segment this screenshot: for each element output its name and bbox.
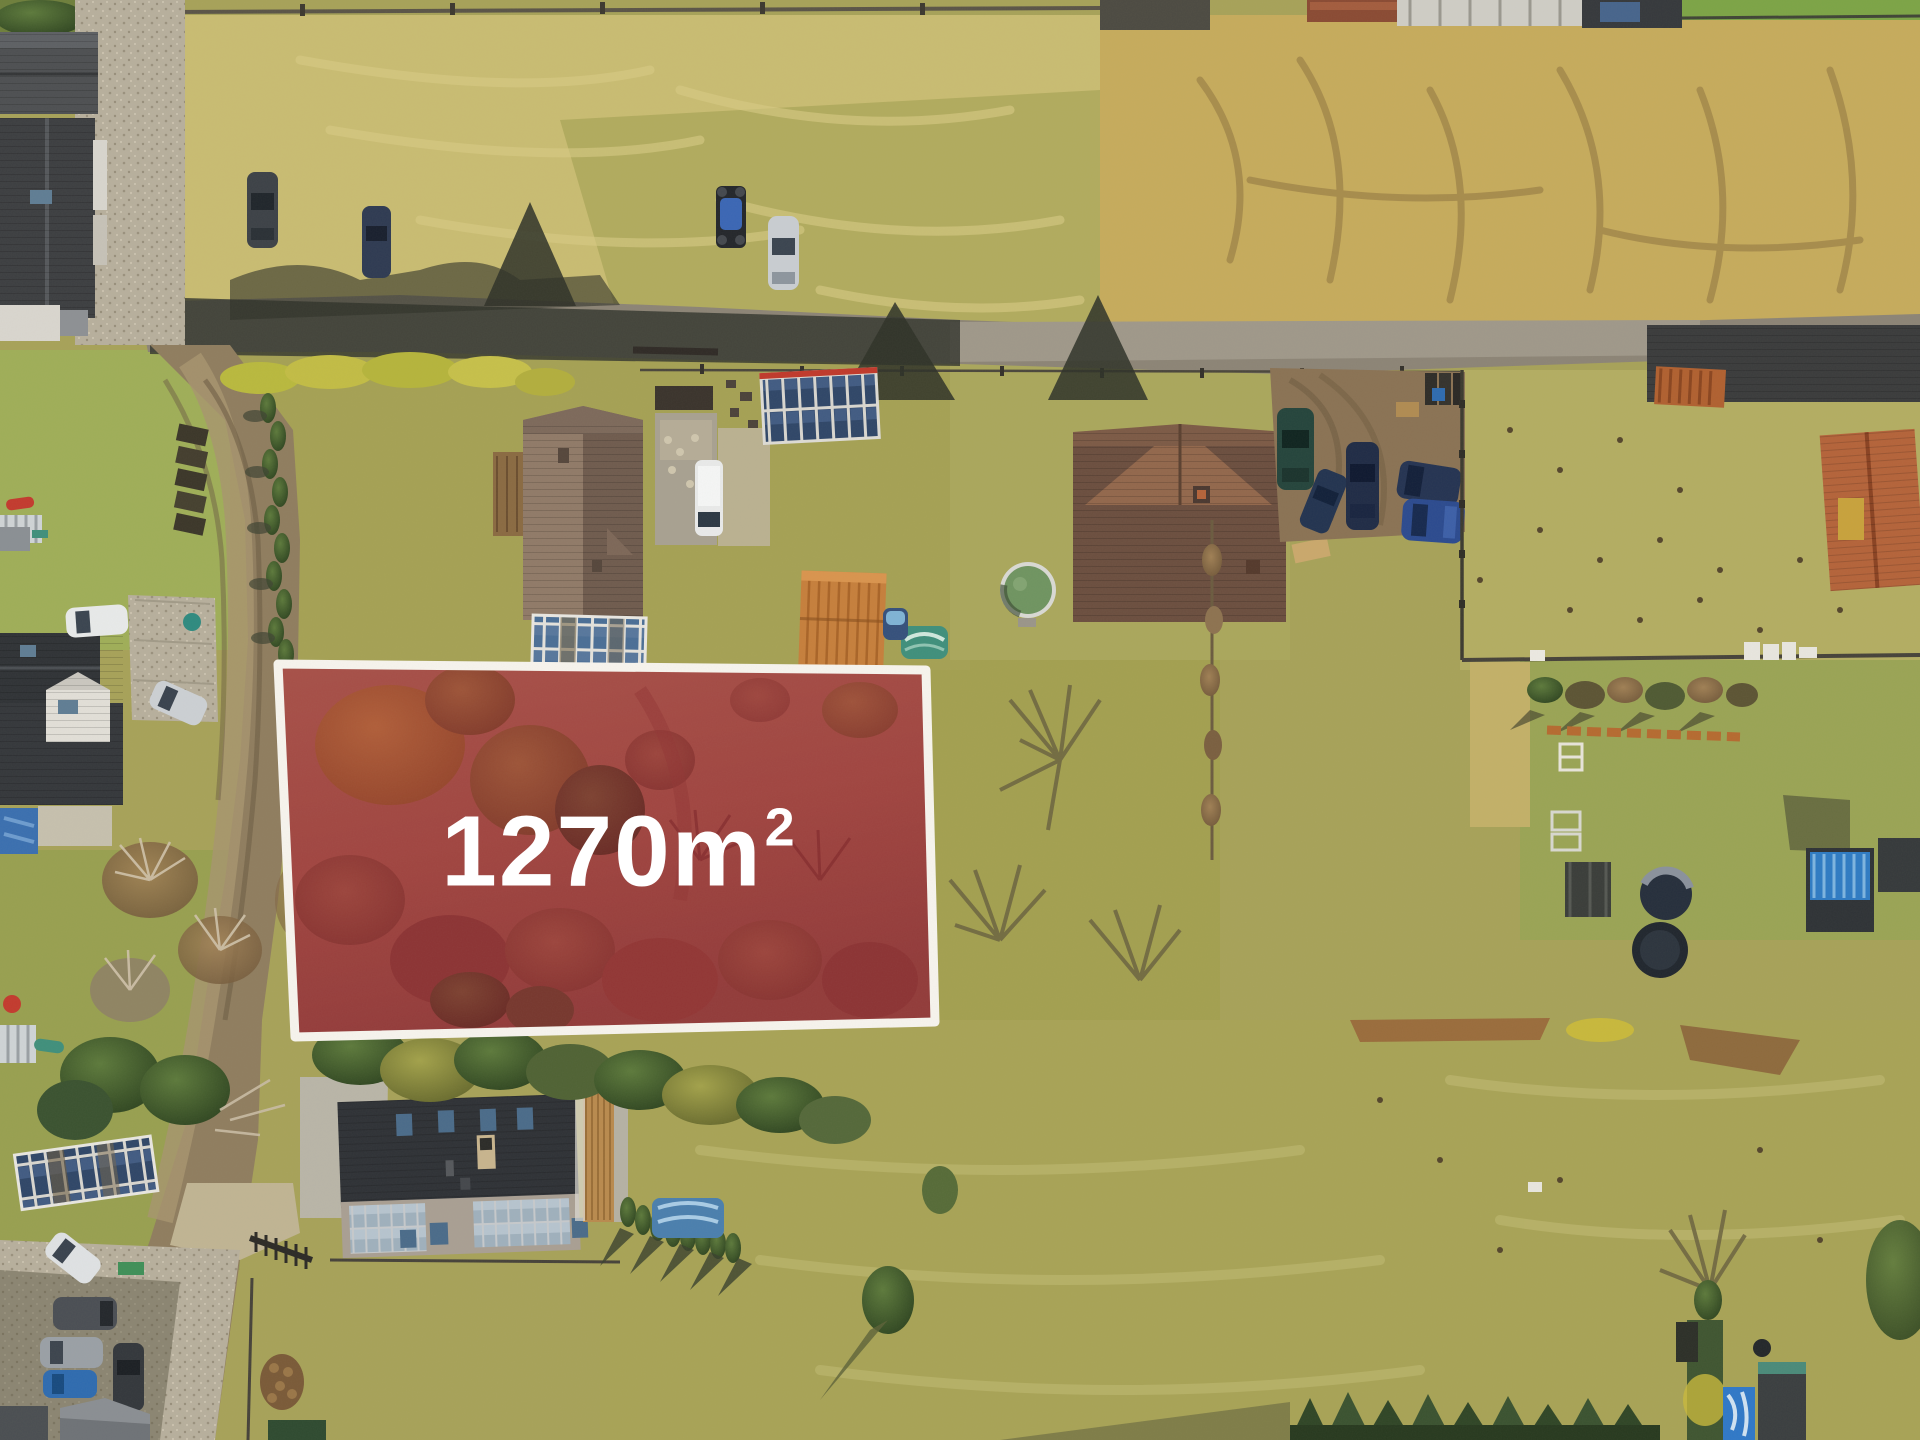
aerial-photo: 1270m2 [0,0,1920,1440]
plot-area-label: 1270m2 [441,795,794,910]
photo-grain [0,0,1920,1440]
plot-area-superscript: 2 [765,798,797,858]
aerial-scene [0,0,1920,1440]
plot-area-value: 1270m [441,796,762,908]
